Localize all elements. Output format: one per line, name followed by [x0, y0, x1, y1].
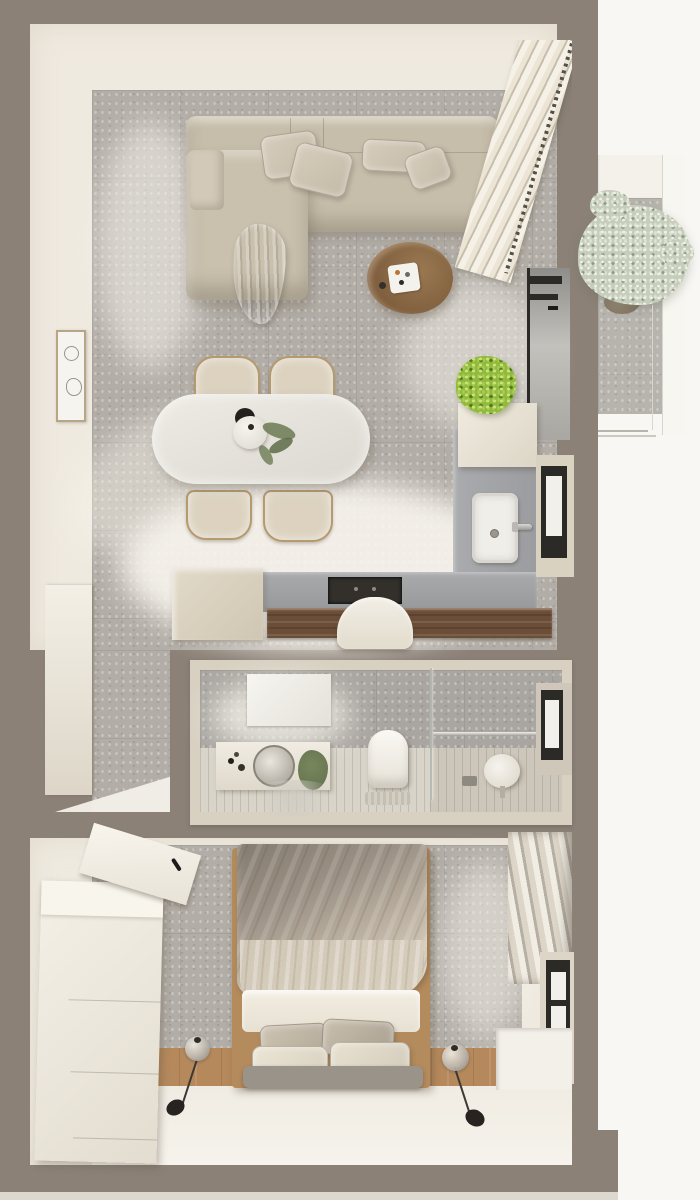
dresser-drawer-line [69, 999, 161, 1002]
bed-bench [243, 1066, 423, 1088]
pendant-cap [451, 1045, 458, 1051]
toilet [368, 730, 408, 788]
dining-chair [186, 490, 252, 540]
balcony-ledge-line [598, 430, 648, 432]
glass-partition [430, 668, 432, 800]
towel-rail [433, 732, 553, 735]
window-frame-bar [530, 276, 562, 284]
olive-tree-tuft [590, 190, 630, 220]
dining-chair [263, 490, 333, 542]
window-frame-bar [530, 294, 558, 300]
tray-cup [399, 280, 404, 285]
pendant-cap [194, 1037, 201, 1043]
kitchen-base-cabinet [172, 568, 263, 640]
shower-caddy [462, 776, 477, 786]
cosmetics [234, 752, 239, 757]
art-scribble [66, 378, 82, 396]
wall-mirror [247, 674, 331, 726]
sofa-armrest-cushion [190, 150, 224, 210]
balcony-corner-line [652, 305, 653, 430]
vase-dot [248, 424, 254, 430]
dresser-drawer-line [71, 1071, 159, 1074]
bathroom-window [536, 683, 572, 775]
balcony-ledge-line [598, 435, 656, 437]
sink-drain [490, 529, 499, 538]
plinth-strip [0, 1192, 618, 1200]
outer-wall-extension [598, 1130, 618, 1192]
bath-mat [365, 792, 411, 805]
pendant-bulb [442, 1044, 469, 1071]
kitchen-window [536, 455, 574, 577]
table-item [379, 282, 386, 289]
bedroom-white-floor [92, 1086, 572, 1165]
serving-tray [387, 262, 421, 294]
bed-sheet-wrinkled [240, 940, 424, 996]
wall-art-frame [56, 330, 86, 422]
cooktop-knob [372, 587, 376, 591]
panel-handle [171, 858, 182, 872]
window-frame-bar [546, 1000, 570, 1006]
cosmetics [228, 758, 234, 764]
window-pane [546, 476, 562, 536]
art-scribble [64, 346, 79, 361]
window-sill [496, 1028, 572, 1090]
floor-reflection [246, 780, 342, 816]
entry-door-panel [45, 585, 92, 795]
shower-stool [484, 754, 520, 788]
floorplan-render [0, 0, 700, 1200]
tray-cup [405, 272, 410, 277]
cooktop-knob [354, 587, 358, 591]
bathroom-block [190, 660, 572, 825]
dresser [34, 880, 163, 1163]
window-pane [545, 700, 559, 748]
olive-tree-tuft [660, 240, 694, 266]
dresser-drawer-line [73, 1137, 157, 1140]
shower-stool-leg [500, 786, 505, 798]
window-handle [548, 306, 558, 310]
tray-cup [395, 270, 400, 275]
pendant-bulb [185, 1036, 210, 1061]
cosmetics [238, 764, 245, 771]
kitchen-plant [456, 356, 516, 414]
sink-faucet-base [512, 522, 518, 532]
blinds-clip [440, 40, 572, 290]
